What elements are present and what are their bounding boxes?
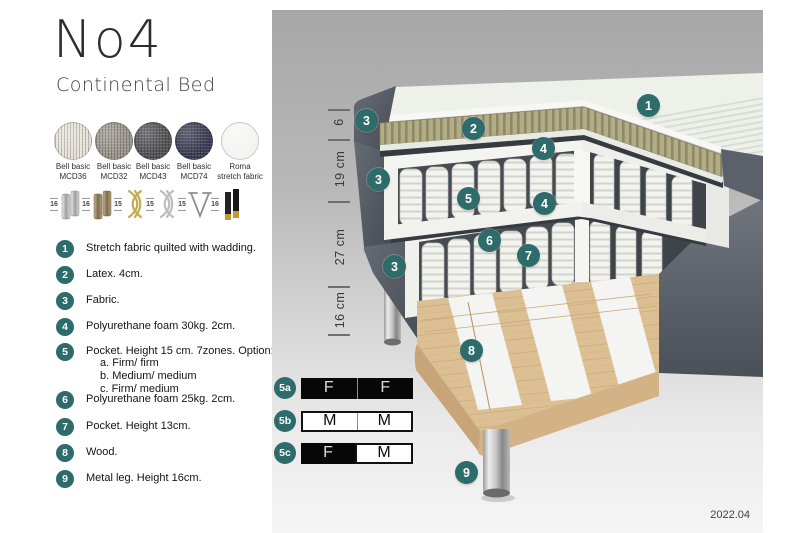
product-title: No4 — [53, 14, 163, 66]
leg-option: 16 — [50, 186, 82, 222]
callout-badge: 3 — [355, 109, 378, 132]
leg-height-label: 16 — [82, 198, 90, 211]
firmness-cell: F — [357, 378, 414, 399]
version-label: 2022.04 — [710, 509, 750, 521]
dimension-label: 19 cm — [333, 139, 347, 199]
product-sheet: No4 Continental Bed Bell basicMCD36 Bell… — [0, 0, 800, 533]
feature-text: Latex. 4cm. — [86, 268, 143, 280]
feature-number-badge: 3 — [56, 292, 74, 310]
firmness-row-5c: 5c F M — [274, 442, 413, 464]
feature-text: Fabric. — [86, 294, 120, 306]
callout-badge: 3 — [367, 168, 390, 191]
feature-text: Pocket. Height 15 cm. 7zones. Option: — [86, 345, 274, 357]
leg-height-label: 15 — [178, 198, 186, 211]
callout-badge: 6 — [478, 229, 501, 252]
feature-text: Stretch fabric quilted with wadding. — [86, 242, 256, 254]
fabric-swatch-mcd74 — [175, 122, 213, 160]
dimension-tick — [328, 201, 350, 203]
leg-icon-twist-silver — [156, 188, 178, 220]
leg-height-label: 15 — [146, 198, 154, 211]
leg-icon-black-gold — [221, 188, 243, 220]
feature-text: Polyurethane foam 25kg. 2cm. — [86, 393, 235, 405]
leg-icon-cylinder-silver — [60, 188, 82, 220]
feature-text: Wood. — [86, 446, 118, 458]
callout-badge: 4 — [532, 137, 555, 160]
firmness-bar: M M — [301, 411, 413, 432]
dimension-label: 27 cm — [333, 217, 347, 277]
firmness-cell: M — [357, 413, 412, 430]
firmness-bar: F F — [301, 378, 413, 399]
leg-option: 15 — [178, 186, 212, 222]
fabric-swatch-mcd36 — [54, 122, 92, 160]
leg-height-label: 16 — [211, 198, 219, 211]
fabric-swatch-mcd43 — [134, 122, 172, 160]
leg-option: 15 — [146, 186, 178, 222]
callout-badge: 9 — [455, 461, 478, 484]
firmness-cell: F — [301, 378, 357, 399]
callout-badge: 2 — [462, 117, 485, 140]
leg-option: 16 — [82, 186, 114, 222]
callout-badge: 3 — [383, 255, 406, 278]
feature-number-badge: 9 — [56, 470, 74, 488]
leg-height-label: 16 — [50, 198, 58, 211]
feature-number-badge: 7 — [56, 418, 74, 436]
fabric-swatch-label: Bell basicMCD74 — [168, 162, 220, 181]
dimension-label: 16 cm — [333, 280, 347, 340]
feature-text: Polyurethane foam 30kg. 2cm. — [86, 320, 235, 332]
feature-number-badge: 2 — [56, 266, 74, 284]
diagram-panel: 6 19 cm 27 cm 16 cm 1 2 3 4 3 5 4 6 7 3 … — [272, 10, 763, 533]
fabric-swatch-label: Romastretch fabric — [214, 162, 266, 181]
leg-option: 15 — [114, 186, 146, 222]
feature-number-badge: 8 — [56, 444, 74, 462]
firmness-row-5a: 5a F F — [274, 377, 413, 399]
feature-text: Metal leg. Height 16cm. — [86, 472, 202, 484]
firmness-cell: M — [303, 413, 357, 430]
firmness-id-badge: 5a — [274, 377, 296, 399]
feature-option: b. Medium/ medium — [100, 370, 197, 382]
callout-badge: 1 — [637, 94, 660, 117]
feature-option: a. Firm/ firm — [100, 357, 159, 369]
leg-icon-cylinder-bronze — [92, 188, 114, 220]
feature-number-badge: 1 — [56, 240, 74, 258]
feature-number-badge: 5 — [56, 343, 74, 361]
firmness-bar: F M — [301, 443, 413, 464]
product-subtitle: Continental Bed — [56, 74, 216, 96]
firmness-cell: M — [355, 443, 413, 464]
callout-badge: 5 — [457, 187, 480, 210]
fabric-swatch-mcd32 — [95, 122, 133, 160]
leg-icon-twist-gold — [124, 188, 146, 220]
fabric-swatch-roma — [221, 122, 259, 160]
feature-number-badge: 4 — [56, 318, 74, 336]
feature-text: Pocket. Height 13cm. — [86, 420, 191, 432]
callout-badge: 7 — [517, 244, 540, 267]
leg-option: 16 — [211, 186, 243, 222]
feature-number-badge: 6 — [56, 391, 74, 409]
leg-height-label: 15 — [114, 198, 122, 211]
callout-badge: 4 — [533, 192, 556, 215]
firmness-cell: F — [301, 443, 355, 464]
firmness-row-5b: 5b M M — [274, 410, 413, 432]
firmness-id-badge: 5c — [274, 442, 296, 464]
firmness-id-badge: 5b — [274, 410, 296, 432]
leg-icon-hairpin — [188, 188, 212, 220]
callout-badge: 8 — [460, 339, 483, 362]
